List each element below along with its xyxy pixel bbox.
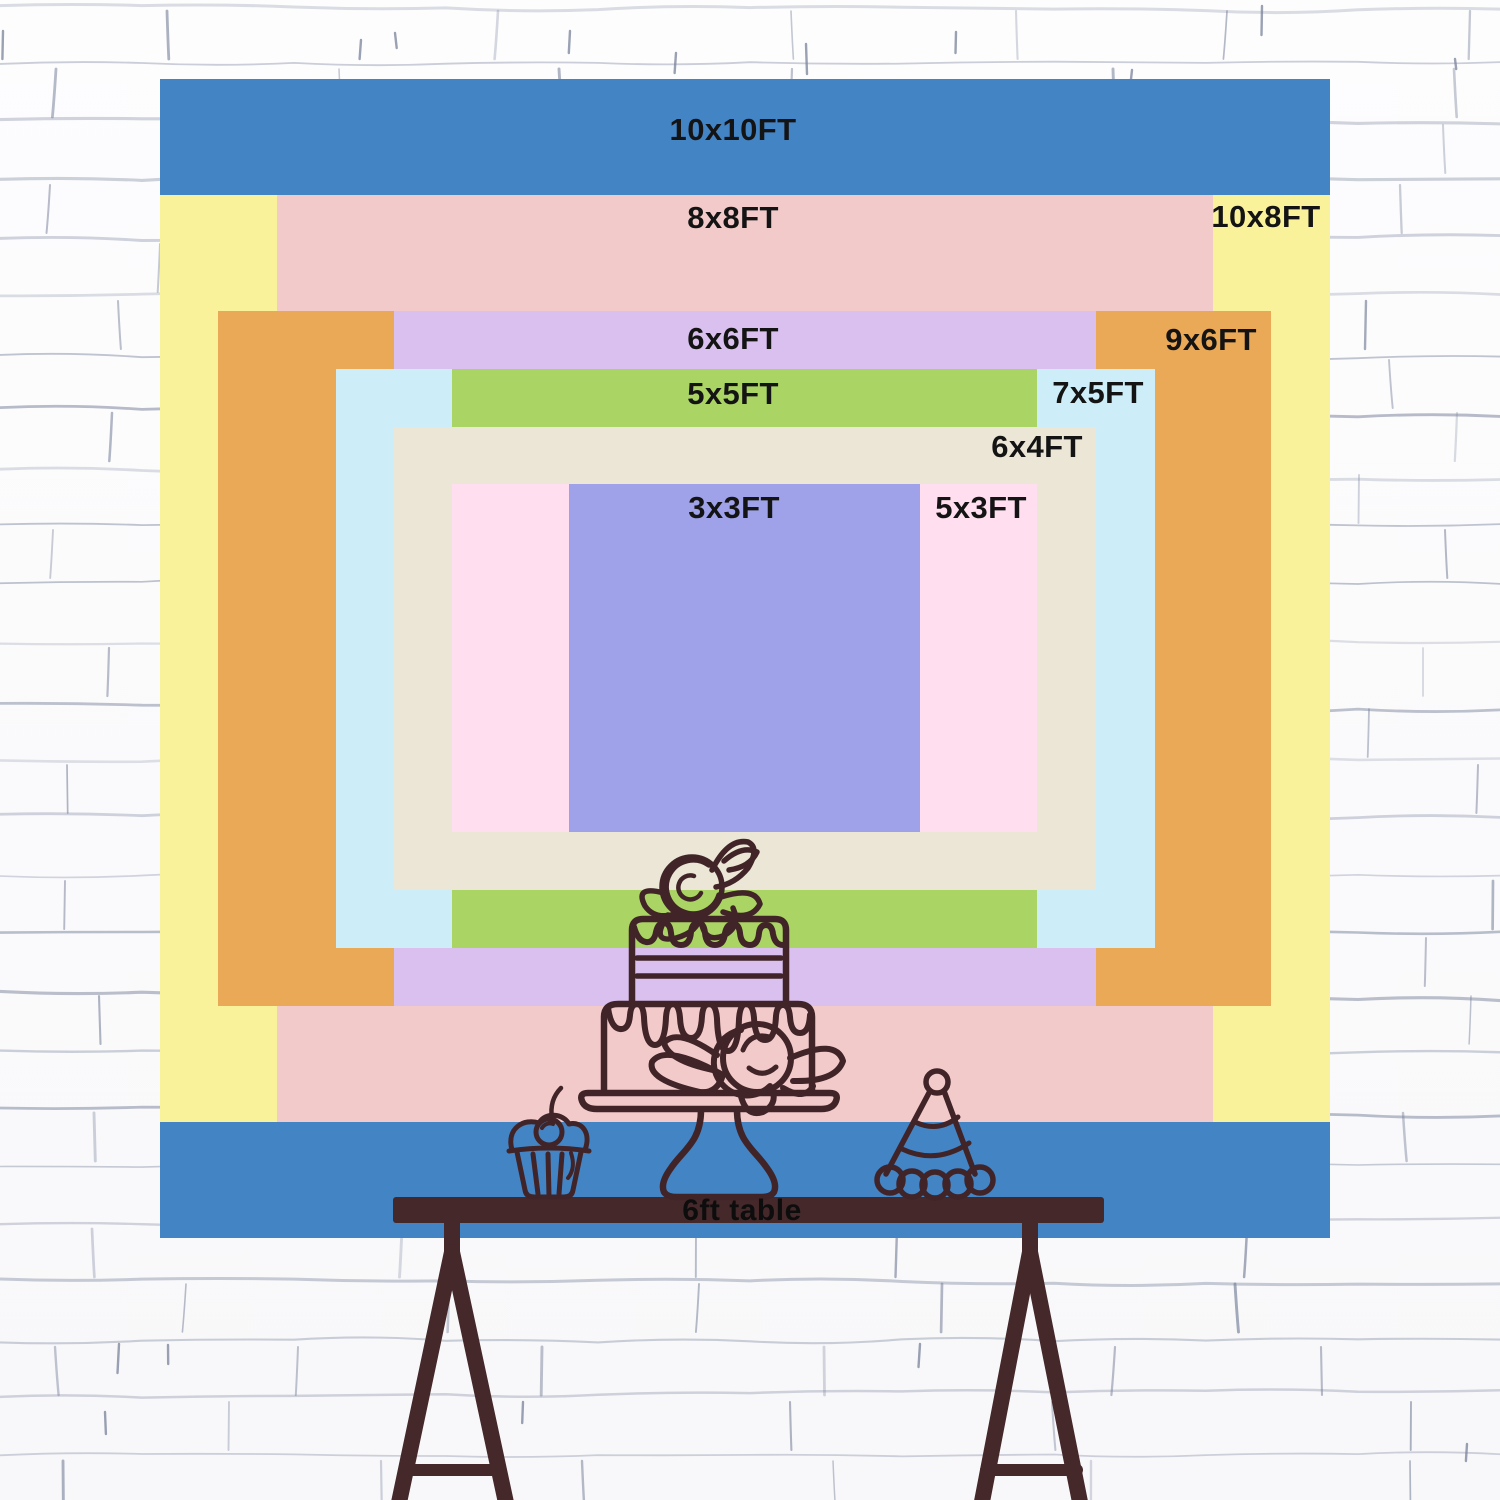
size-label-10x8ft: 10x8FT — [1211, 199, 1320, 235]
size-label-6x4ft: 6x4FT — [991, 429, 1083, 465]
table-size-label: 6ft table — [682, 1194, 802, 1228]
size-label-9x6ft: 9x6FT — [1165, 322, 1257, 358]
size-label-8x8ft: 8x8FT — [687, 200, 779, 236]
size-label-6x6ft: 6x6FT — [687, 321, 779, 357]
size-label-7x5ft: 7x5FT — [1052, 375, 1144, 411]
size-rect-3x3ft — [569, 484, 920, 832]
scene: 10x10FT 10x8FT 8x8FT 9x6FT 6x6FT 7x5FT 5… — [0, 0, 1500, 1500]
size-label-5x3ft: 5x3FT — [935, 490, 1027, 526]
size-label-10x10ft: 10x10FT — [670, 112, 797, 148]
size-label-3x3ft: 3x3FT — [688, 490, 780, 526]
size-label-5x5ft: 5x5FT — [687, 376, 779, 412]
